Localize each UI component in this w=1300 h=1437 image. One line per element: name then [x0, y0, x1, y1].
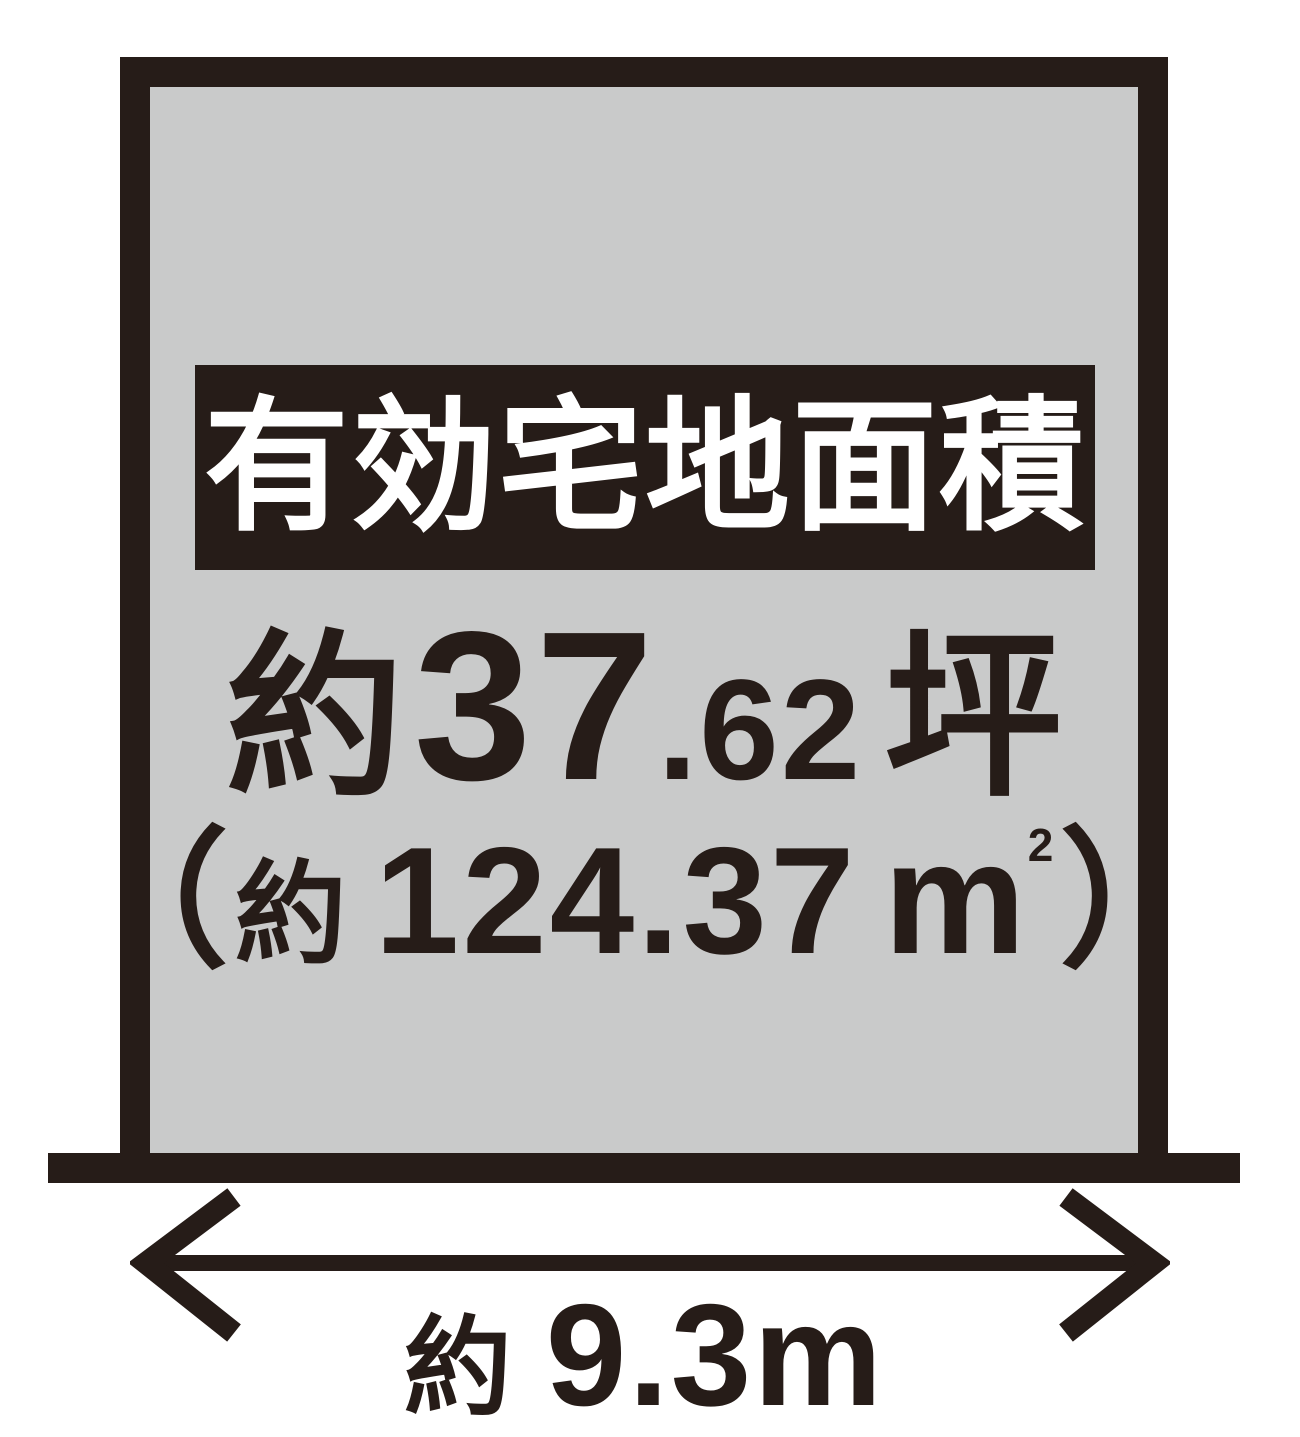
sqm-unit-exponent: 2 — [1028, 822, 1054, 868]
tsubo-approx-prefix: 約 — [226, 629, 404, 807]
sqm-value: 124.37 — [375, 825, 858, 977]
sqm-approx-prefix: 約 — [235, 859, 347, 971]
area-banner: 有効宅地面積 — [195, 365, 1095, 570]
area-tsubo: 約 37 .62 坪 — [150, 600, 1138, 812]
road-boundary-line — [48, 1153, 1240, 1183]
banner-label: 有効宅地面積 — [204, 395, 1086, 540]
tsubo-whole-number: 37 — [414, 600, 658, 812]
frontage-value: 9.3m — [546, 1283, 885, 1428]
tsubo-decimal: .62 — [658, 659, 863, 802]
area-sqm: （ 約 124.37 m 2 ） — [150, 818, 1138, 978]
sqm-paren-close: ） — [1059, 826, 1209, 976]
sqm-unit: m — [884, 818, 1026, 978]
frontage-approx-prefix: 約 — [404, 1314, 512, 1422]
tsubo-unit: 坪 — [884, 629, 1062, 807]
land-plot-diagram: 有効宅地面積 約 37 .62 坪 （ 約 124.37 m 2 ） 約 9.3… — [0, 0, 1300, 1437]
frontage-label: 約 9.3m — [150, 1283, 1138, 1428]
sqm-paren-open: （ — [79, 826, 229, 976]
